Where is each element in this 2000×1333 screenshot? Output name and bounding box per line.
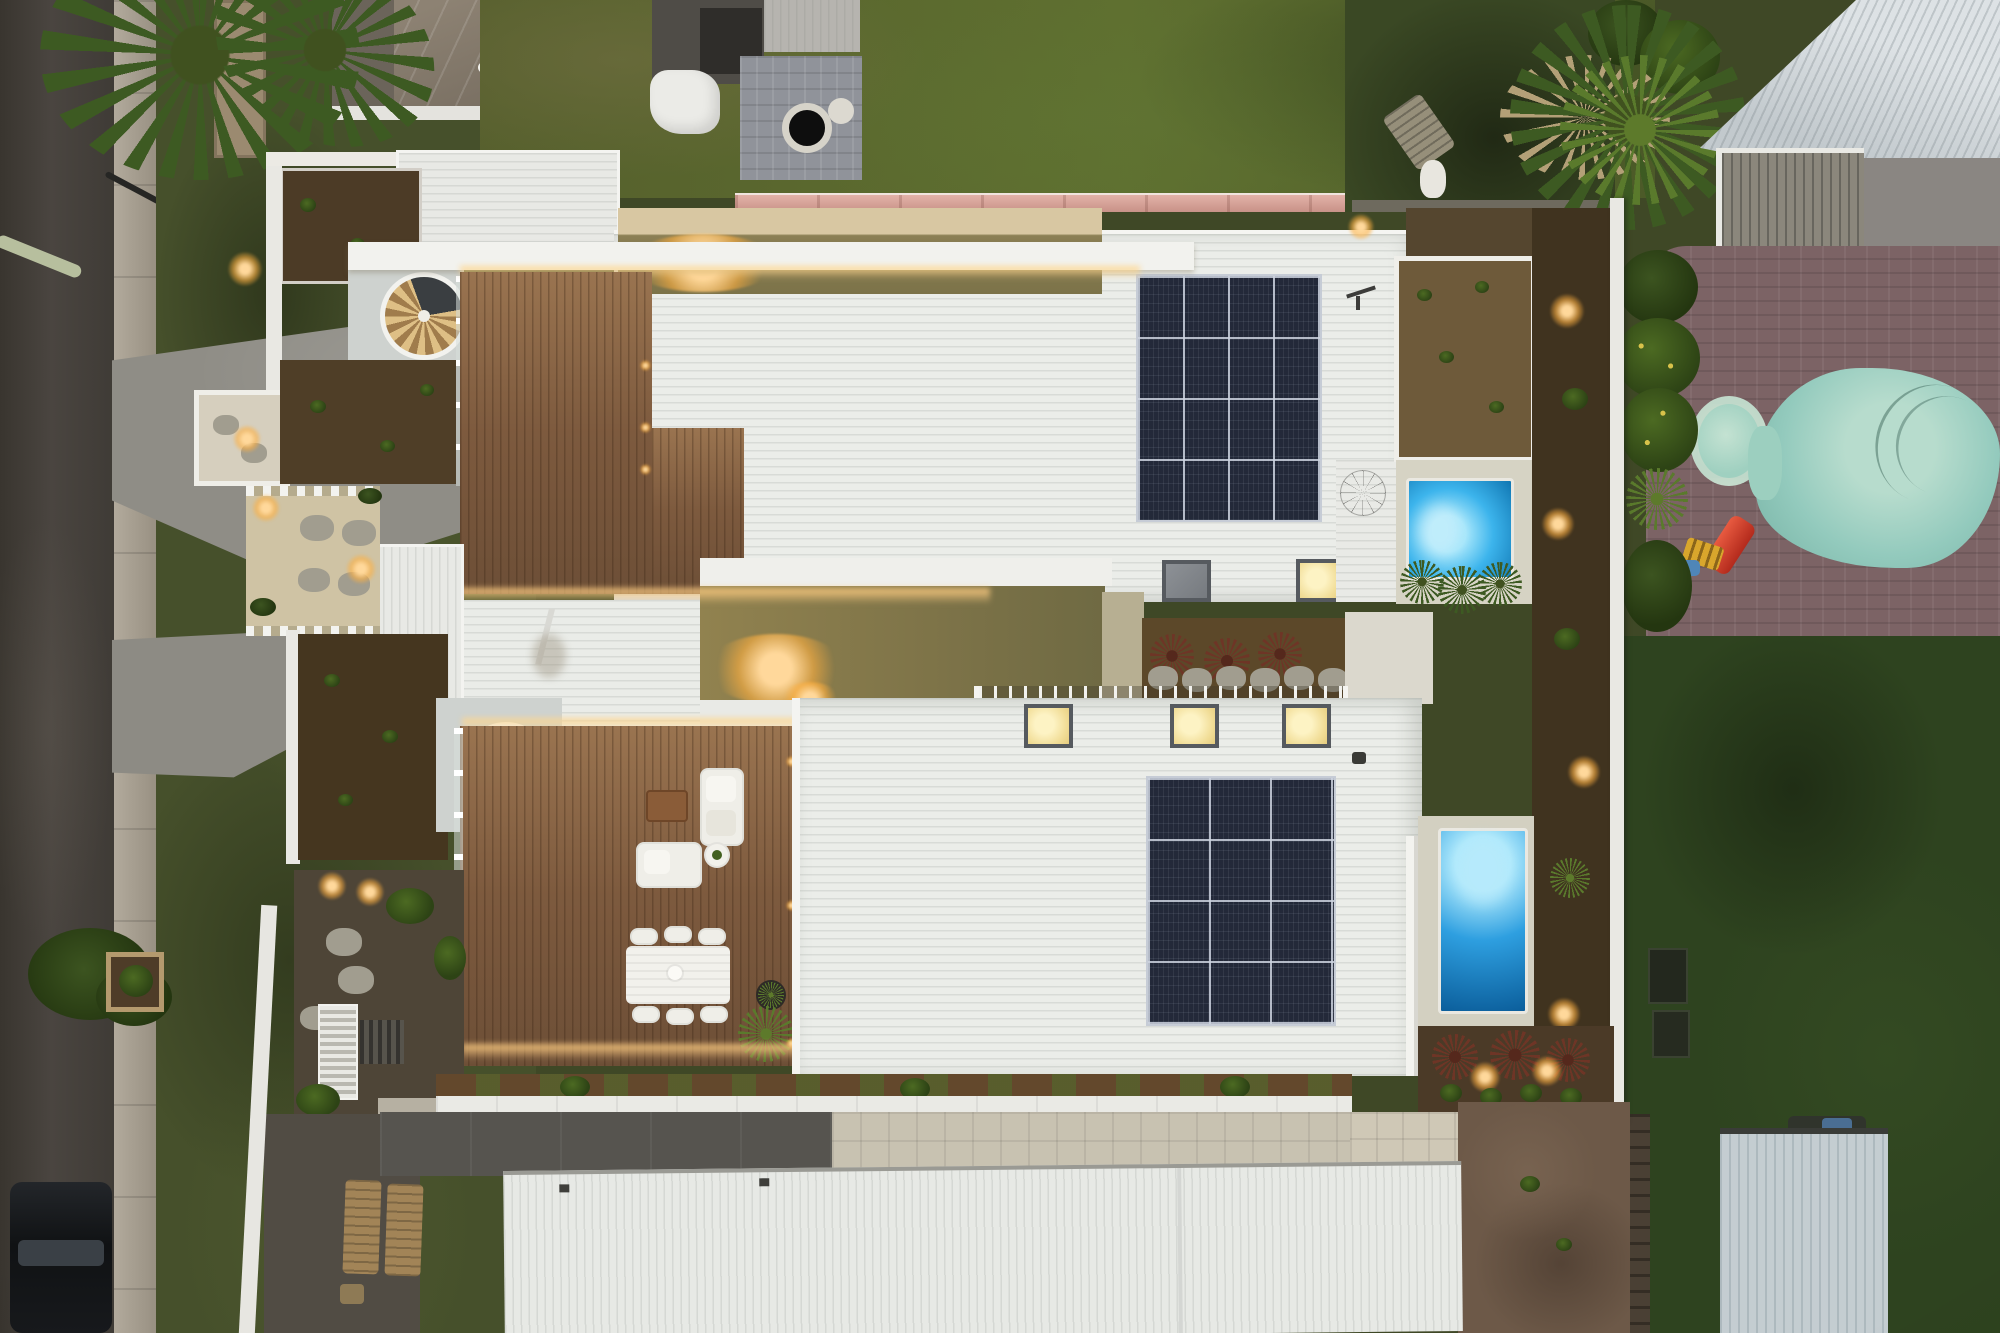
drain-grate [360, 1020, 404, 1064]
unit2-led-strip-south [462, 1044, 798, 1060]
bed-plant [382, 730, 398, 743]
stair-center-post [418, 310, 430, 322]
east-fence-shrub-3 [1620, 388, 1698, 472]
timber-sun-lounger-2 [384, 1183, 423, 1276]
outdoor-sofa-long [700, 768, 744, 846]
pot-foliage [758, 982, 784, 1008]
garden-plant [1439, 351, 1454, 363]
unit2-solar-array [1146, 776, 1336, 1026]
hedge-bush [560, 1076, 590, 1098]
bed-plant [300, 198, 316, 212]
round-side-table [704, 842, 730, 868]
sofa-cushion [644, 850, 670, 874]
alfresco-plant [386, 888, 434, 924]
rotary-clothesline [1340, 470, 1386, 516]
pool1-palm-1 [1400, 560, 1444, 604]
sofa-cushion [706, 810, 736, 836]
alfresco-stone [326, 928, 362, 956]
garden-shed-light [764, 0, 860, 52]
coffee-table [646, 790, 688, 822]
garden-plant [1489, 401, 1504, 413]
unit2-pool [1438, 828, 1528, 1014]
unit1-entry-courtyard [194, 390, 290, 486]
path-uplight [1550, 294, 1584, 328]
garden-statue [1420, 160, 1446, 198]
garden-uplight [1532, 1056, 1562, 1086]
east-mulch-path [1532, 208, 1610, 1113]
east-fence-shrub-1 [1618, 250, 1698, 324]
neighbor-ne-house-roof [1700, 0, 2000, 172]
ne-corner-light [1348, 214, 1374, 240]
aerial-photo [0, 0, 2000, 1333]
east-fence-shrub-2 [1616, 318, 1700, 398]
garden-plant [1475, 281, 1489, 293]
dining-chair [698, 928, 726, 945]
roof-panel-joint [1177, 1168, 1183, 1333]
path-plant [1562, 388, 1588, 410]
stepping-stone [298, 568, 330, 592]
hedge-bush [1220, 1076, 1250, 1098]
outdoor-sofa-short [636, 842, 702, 888]
unit1-ne-mulch [1406, 208, 1536, 260]
entry1-lantern [233, 425, 261, 453]
path-uplight [1568, 756, 1600, 788]
unit1-rooftop-deck [460, 272, 652, 594]
east-agave [1626, 468, 1688, 530]
path-palm [1550, 858, 1590, 898]
roof-vent [559, 1184, 569, 1192]
unit2-skylight-lit-2 [1170, 704, 1219, 748]
unit1-mulch-bed-west [280, 360, 456, 484]
weed [1556, 1238, 1572, 1251]
garden-uplight [1470, 1062, 1500, 1092]
fire-pit [782, 103, 832, 153]
road-wear-patch [0, 520, 114, 940]
garden-plant [1417, 289, 1432, 301]
car-windshield [18, 1240, 104, 1266]
unit2-mulch-bed-west [298, 634, 448, 860]
dining-chair [630, 928, 658, 945]
deck1-light [640, 360, 651, 371]
entry1-uplight [228, 252, 262, 286]
table-plant [712, 850, 722, 860]
pool-light-glow [1419, 505, 1461, 555]
unit1-north-parapet [266, 152, 402, 166]
stepping-stone [300, 515, 334, 541]
weed [1520, 1176, 1540, 1192]
garden-crate-1 [1648, 948, 1688, 1004]
bed-plant [310, 400, 326, 413]
unit2-skylight-lit-3 [1282, 704, 1331, 748]
bed-plant [380, 440, 395, 452]
spa-neck [1748, 426, 1782, 500]
planter-shrub [119, 965, 153, 997]
dining-chair [632, 1006, 660, 1023]
unit2-south-garden [1418, 1026, 1614, 1114]
roof-antenna-2 [1356, 296, 1360, 310]
hedge-shrub [1440, 1084, 1462, 1102]
roof-stain [532, 634, 566, 678]
lounger-side-table [340, 1284, 364, 1304]
kidney-pool [1756, 368, 2000, 568]
entry2-light-2 [346, 554, 376, 584]
path-uplight [1542, 508, 1574, 540]
dining-chair [666, 1008, 694, 1025]
dining-chair [664, 926, 692, 943]
east-fence-shrub-4 [1622, 540, 1692, 632]
dining-table [626, 946, 730, 1004]
parked-car [10, 1182, 112, 1333]
tall-palm-crown [1560, 55, 1720, 205]
unit2-skylight-lit-1 [1024, 704, 1073, 748]
planter-box [106, 952, 164, 1012]
unit2-entry-courtyard [246, 486, 380, 636]
timber-fence [1628, 1114, 1650, 1333]
entry2-plant [250, 598, 276, 616]
roof-vent [759, 1178, 769, 1186]
ne2-white-pad [1345, 612, 1433, 704]
path-plant [1554, 628, 1580, 650]
alfresco-uplight [318, 872, 346, 900]
pool1-palm-3 [1478, 562, 1522, 606]
alfresco-plant [296, 1084, 340, 1116]
front-garage-roof [503, 1161, 1463, 1333]
pool2-light-beam [1455, 835, 1511, 905]
sofa-cushion [706, 776, 736, 802]
dining-chair [700, 1006, 728, 1023]
deck1-light [640, 422, 651, 433]
bed-plant [324, 674, 340, 687]
laundry-on-line [650, 70, 720, 134]
table-centerpiece [668, 966, 682, 980]
unit1-skylight-unlit [1162, 560, 1211, 602]
bed-plant [420, 384, 434, 396]
deck1-light [640, 464, 651, 475]
alfresco-plant [434, 936, 466, 980]
stepping-stone [342, 520, 376, 546]
alfresco-stone [338, 966, 374, 994]
unit1-south-wall [700, 558, 1112, 586]
roof2-vent-dot [1352, 752, 1366, 764]
bed-plant [338, 794, 353, 806]
unit1-ne-garden [1394, 256, 1536, 462]
unit1-solar-array [1136, 274, 1322, 522]
entry2-plant-2 [358, 488, 382, 504]
garden-crate-2 [1652, 1010, 1690, 1058]
white-boundary-fence [1610, 198, 1624, 1123]
unit1-spiral-staircase [380, 272, 468, 360]
hedge-shrub [1520, 1084, 1542, 1102]
firepit-patio [740, 56, 862, 180]
alfresco-uplight [356, 878, 384, 906]
patio-stool [828, 98, 854, 124]
south-paving-dark [380, 1112, 832, 1176]
entry2-light [252, 494, 280, 522]
timber-sun-lounger [342, 1179, 381, 1274]
se-shed-roof [1720, 1128, 1888, 1333]
dirt-patch [1458, 1102, 1630, 1333]
